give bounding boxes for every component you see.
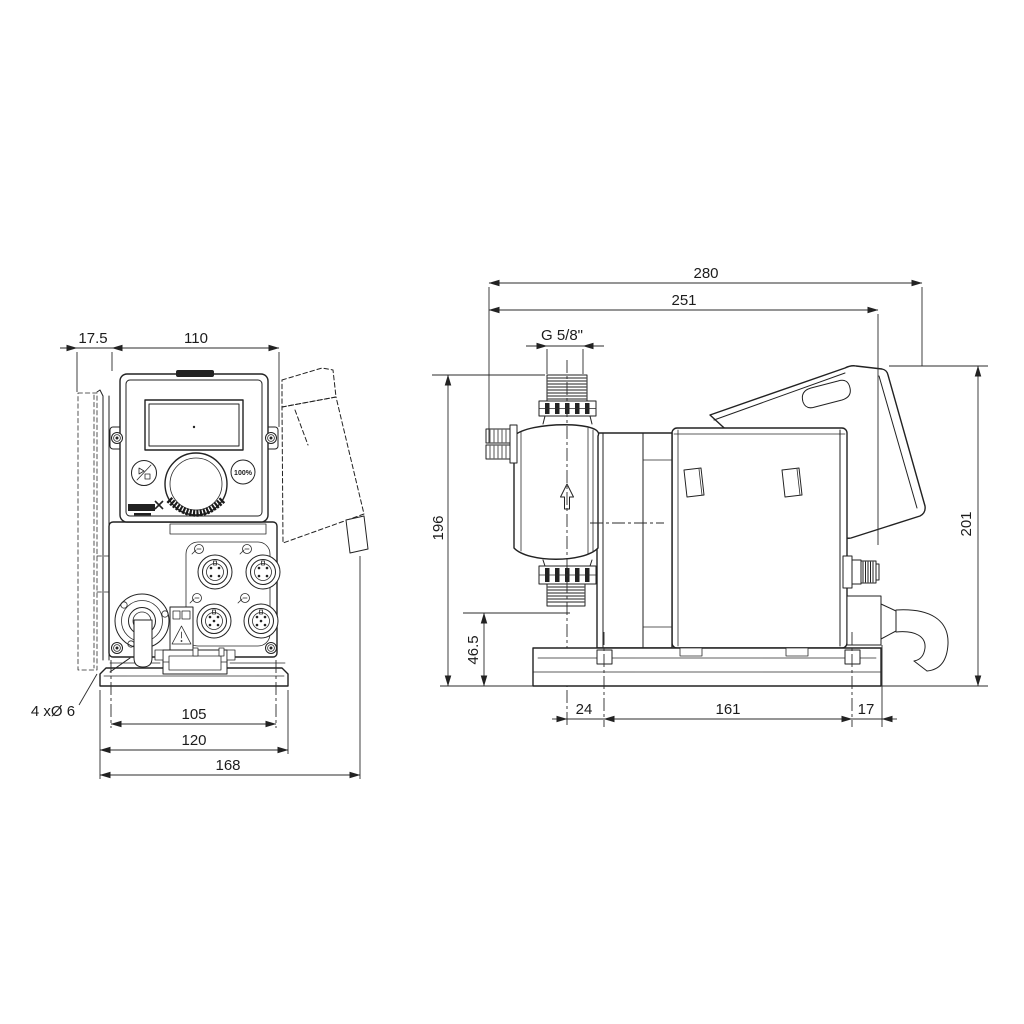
dosing-head [514,416,599,566]
rear-connector [843,556,879,588]
bracket-rail [97,390,109,660]
svg-text:110: 110 [184,330,208,347]
suction-connection [539,566,596,606]
drawing-canvas: 100% [0,0,1024,1024]
dim-connection-thread: G 5/8" [526,327,604,374]
svg-text:17: 17 [858,701,875,718]
svg-text:105: 105 [181,706,206,723]
m12-connector[interactable] [198,555,232,589]
warning-label [170,607,193,650]
foot-hook [155,650,163,660]
corner-screw [266,643,277,654]
dim-bracket-offset: 17.5 [60,330,112,392]
svg-text:17.5: 17.5 [78,330,107,347]
mounting-foot-side [440,648,988,686]
mounting-plate-dashed [282,368,364,543]
svg-text:G 5/8": G 5/8" [541,327,583,344]
adapter-flange [597,433,672,648]
svg-text:196: 196 [430,515,447,540]
foot-tab [845,650,860,664]
mounting-holes-note: 4 xØ 6 [31,674,97,720]
housing-vent [782,468,802,497]
display [145,400,243,450]
foot-hook [227,650,235,660]
dimensional-drawing: 100% [0,0,1024,1024]
bracket-hook [97,390,103,396]
svg-text:46.5: 46.5 [465,635,482,664]
cover-top-face-dashed [282,368,336,407]
start-stop-button[interactable] [132,461,157,486]
housing-vent [684,468,704,497]
boost-button[interactable]: 100% [231,460,255,484]
side-view: 280 251 G 5/8" 196 [430,265,988,727]
power-cable-front [134,620,152,667]
boost-button-label: 100% [234,470,253,477]
corner-screw [112,643,123,654]
housing-latch [680,648,702,656]
m12-connector[interactable] [244,604,278,638]
dim-overall-height: 201 [889,366,988,686]
corner-screw [112,433,123,444]
corner-screw [266,433,277,444]
svg-text:4 xØ 6: 4 xØ 6 [31,703,75,720]
svg-text:201: 201 [958,511,975,536]
m12-connector[interactable] [197,604,231,638]
wall-bracket-dashed [78,393,109,670]
front-view: 100% [31,330,368,779]
foot-latch [155,648,235,674]
click-wheel[interactable] [165,453,227,515]
foot-tab [597,650,612,664]
dim-foot-width: 120 [100,690,288,779]
svg-text:251: 251 [671,292,696,309]
panel-top-clip [176,370,214,377]
svg-text:24: 24 [576,701,593,718]
svg-text:280: 280 [693,265,718,282]
motor-housing [672,428,847,648]
suction-thread [547,584,585,606]
display-cursor-dot [193,426,195,428]
svg-text:168: 168 [215,757,240,774]
dim-foot-offset-front: 24 [552,701,604,719]
discharge-connection [539,375,596,416]
m12-connector[interactable] [246,555,280,589]
bracket-corner-solid [346,516,368,553]
deaeration-knob[interactable] [486,425,517,463]
svg-text:161: 161 [715,701,740,718]
svg-text:120: 120 [181,732,206,749]
housing-latch [786,648,808,656]
